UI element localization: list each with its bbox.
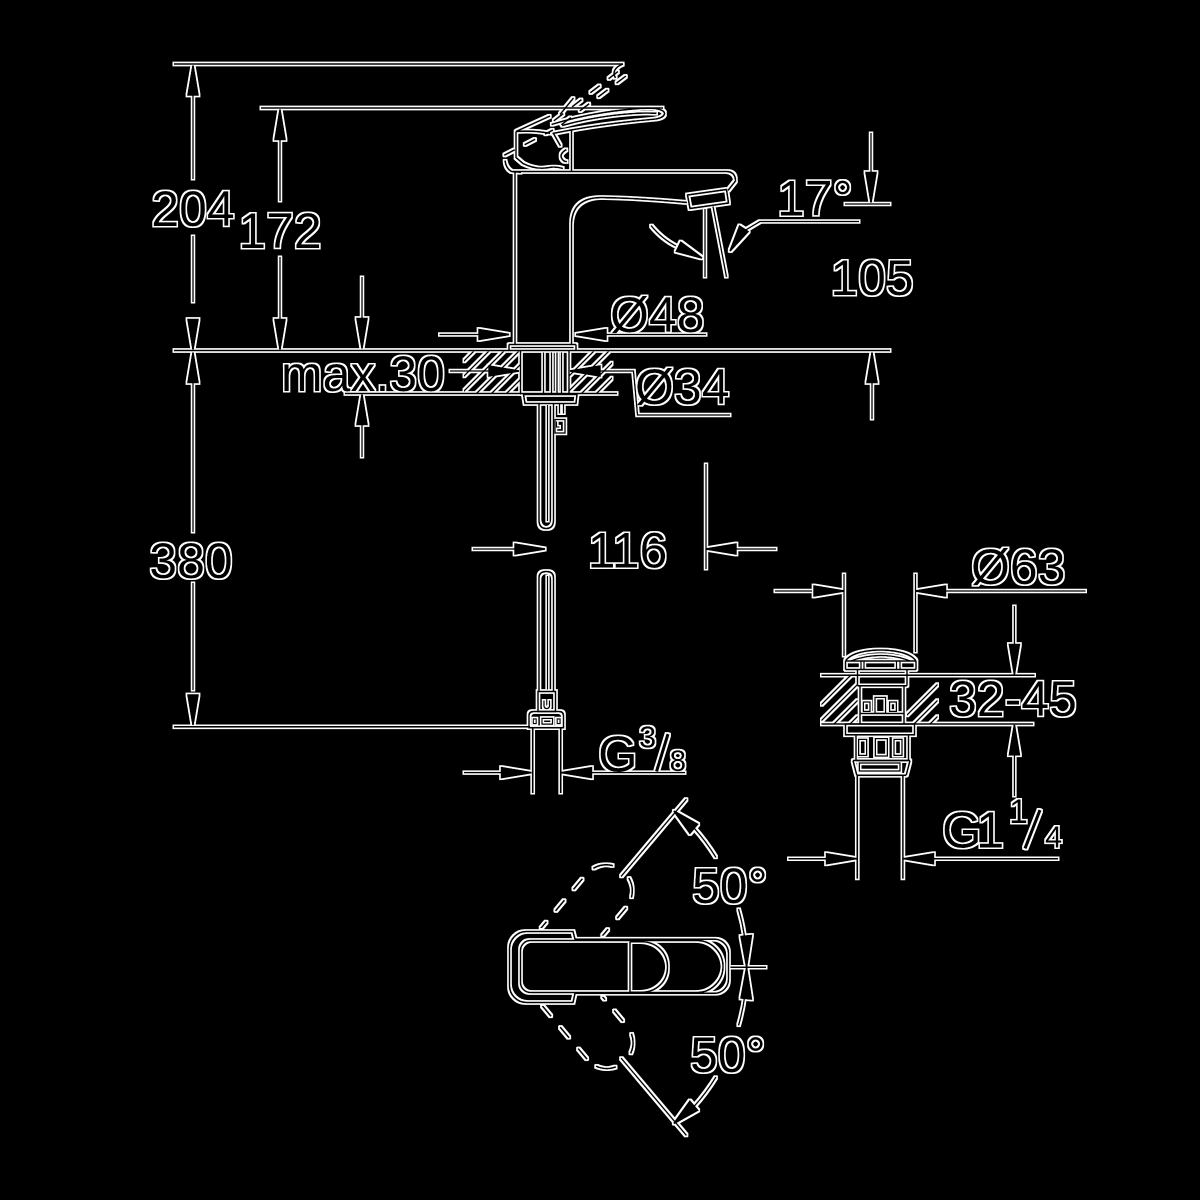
svg-text:Ø63: Ø63 — [971, 539, 1066, 595]
svg-text:3: 3 — [639, 720, 656, 755]
svg-text:50°: 50° — [690, 1027, 766, 1083]
svg-text:G: G — [598, 725, 638, 782]
svg-text:105: 105 — [830, 250, 913, 306]
svg-text:380: 380 — [149, 533, 232, 589]
svg-text:50°: 50° — [692, 858, 768, 914]
svg-text:4: 4 — [1045, 820, 1062, 855]
svg-text:204: 204 — [151, 181, 234, 237]
svg-text:172: 172 — [238, 203, 321, 259]
svg-text:32-45: 32-45 — [949, 671, 1077, 727]
svg-text:17°: 17° — [777, 171, 853, 227]
svg-text:1: 1 — [1009, 793, 1028, 831]
svg-text:1: 1 — [976, 802, 1004, 859]
svg-text:Ø48: Ø48 — [610, 287, 705, 343]
svg-text:Ø34: Ø34 — [635, 359, 730, 415]
svg-text:116: 116 — [588, 523, 668, 579]
svg-text:8: 8 — [670, 745, 687, 778]
